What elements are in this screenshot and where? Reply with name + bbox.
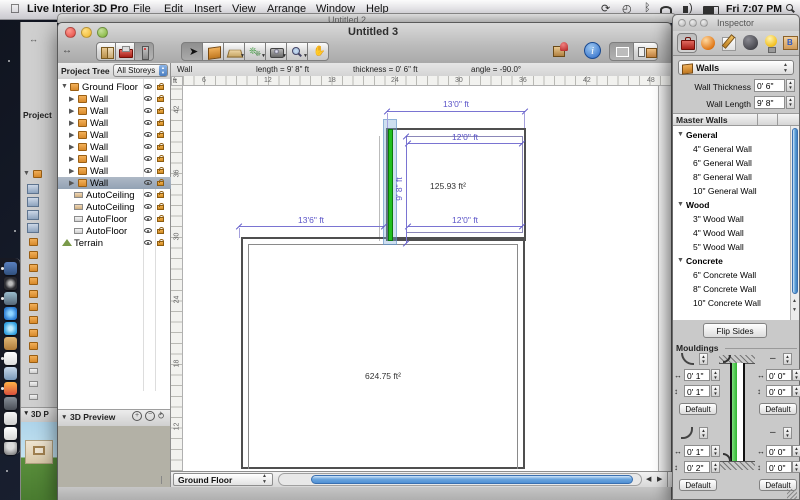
wall-length-value: 9' 8" xyxy=(757,98,773,108)
folder-icon xyxy=(78,179,87,187)
dimension-tick xyxy=(522,108,528,114)
crown-profile-icon[interactable] xyxy=(681,353,694,365)
lock-icon[interactable] xyxy=(157,241,164,246)
lock-icon[interactable] xyxy=(157,133,164,138)
group-label: Concrete xyxy=(686,256,723,266)
materials-sphere-icon[interactable] xyxy=(701,36,715,50)
folder-icon xyxy=(29,316,38,324)
lock-icon[interactable] xyxy=(157,85,164,90)
wall-thickness-stepper[interactable]: ▲▼ xyxy=(786,79,795,92)
dock-document-icon[interactable] xyxy=(4,427,17,440)
folder-icon xyxy=(29,342,38,350)
wall-item[interactable]: 3" Wood Wall xyxy=(673,213,791,225)
eye-icon[interactable] xyxy=(144,204,152,209)
wall-item-label: 4" Wood Wall xyxy=(693,228,744,238)
project-tree-header: Project Tree All Storeys ▲▼ xyxy=(58,63,170,80)
disclosure-icon[interactable]: ▶ xyxy=(69,95,74,103)
selected-wall[interactable] xyxy=(388,129,393,241)
table-icon xyxy=(27,184,39,194)
lock-icon[interactable] xyxy=(157,229,164,234)
toolbox-handle xyxy=(685,37,691,41)
tree-row-wall[interactable]: ▶ Wall xyxy=(58,153,171,165)
wall-item[interactable]: 8" Concrete Wall xyxy=(673,283,791,295)
wall-item-label: 3" Wood Wall xyxy=(693,214,744,224)
width-icon: ↔ xyxy=(674,447,682,456)
wall-item[interactable]: 6" Concrete Wall xyxy=(673,269,791,281)
preview-rotate-icon[interactable]: ⥁ xyxy=(158,411,164,422)
ruler-tick-label: 30 xyxy=(173,233,180,241)
disclosure-icon[interactable]: ▶ xyxy=(69,131,74,139)
dimension-line xyxy=(239,226,384,227)
eye-icon[interactable] xyxy=(144,240,152,245)
ruler-tick-label: 18 xyxy=(328,77,336,84)
tree-label: Terrain xyxy=(74,238,103,249)
preview-window-frame xyxy=(33,446,45,455)
no-profile-icon[interactable]: – xyxy=(770,353,776,364)
split-house-icon xyxy=(646,48,657,58)
folder-icon xyxy=(29,355,38,363)
inspector-toolbar: B xyxy=(673,31,799,56)
building-properties-icon[interactable]: B xyxy=(783,36,798,50)
room-tool-button[interactable]: ▼ xyxy=(223,42,245,61)
profile-stepper[interactable]: ▲▼ xyxy=(699,427,708,439)
dock-running-dot xyxy=(1,297,4,300)
wall-cross-section-green xyxy=(732,363,737,461)
wall-item-label: 6" General Wall xyxy=(693,158,752,168)
info-button[interactable]: i xyxy=(584,42,601,59)
wall-item-label: 8" Concrete Wall xyxy=(693,284,756,294)
horizontal-ruler: 6 12 18 24 30 36 42 48 xyxy=(183,76,671,86)
dock-running-dot xyxy=(1,387,4,390)
dock-app-icon[interactable] xyxy=(4,307,17,320)
wall-group-general[interactable]: ▼General xyxy=(673,129,791,141)
select-tool-button[interactable]: ➤ xyxy=(181,42,203,61)
vertical-ruler: 42 36 30 24 18 12 xyxy=(171,86,183,471)
default-button[interactable]: Default xyxy=(679,403,717,415)
group-label: General xyxy=(686,130,718,140)
tree-row-autofloor[interactable]: AutoFloor xyxy=(58,225,171,237)
light-bulb-icon[interactable] xyxy=(765,35,777,47)
master-walls-list[interactable]: ▼General 4" General Wall 6" General Wall… xyxy=(673,126,799,320)
tree-row-wall[interactable]: ▶ Wall xyxy=(58,165,171,177)
area-label-lower: 624.75 ft² xyxy=(351,371,415,381)
dim-label-inner-top: 12'0" ft xyxy=(435,132,495,142)
moulding-field[interactable]: 0' 1" xyxy=(684,369,710,381)
camera-tool-button[interactable]: ▼ xyxy=(265,42,287,61)
base-profile-icon[interactable] xyxy=(681,427,693,439)
lock-icon[interactable] xyxy=(157,145,164,150)
table-icon xyxy=(27,197,39,207)
field-stepper[interactable]: ▲▼ xyxy=(792,461,800,473)
profile-stepper[interactable]: ▲▼ xyxy=(699,353,708,365)
camera-object-icon[interactable] xyxy=(743,35,758,50)
tree-label: Wall xyxy=(90,178,108,189)
dock-app-icon[interactable] xyxy=(4,367,17,380)
desktop-star xyxy=(6,470,8,472)
dimension-line-vertical xyxy=(406,136,407,243)
tree-label: Wall xyxy=(90,130,108,141)
main-window: Untitled 3 ↔ ➤ ▼ ❊ ❊ ▼ xyxy=(57,22,672,500)
disclosure-icon[interactable]: ▶ xyxy=(69,119,74,127)
lock-icon[interactable] xyxy=(157,217,164,222)
disclosure-icon[interactable]: ▶ xyxy=(69,167,74,175)
profile-stepper[interactable]: ▲▼ xyxy=(783,427,792,439)
popup-arrows-icon: ▲▼ xyxy=(159,65,167,76)
moulding-field[interactable]: 0' 1" xyxy=(684,445,710,457)
view-2d-button[interactable] xyxy=(609,42,634,61)
wall-thickness-value: 0' 6" xyxy=(757,81,773,91)
wall-item-label: 10" General Wall xyxy=(693,186,757,196)
tree-row-wall-selected[interactable]: ▶ Wall xyxy=(58,177,171,189)
horizontal-scrollbar-track[interactable] xyxy=(278,473,642,486)
eye-icon[interactable] xyxy=(144,228,152,233)
horizontal-scrollbar-thumb[interactable] xyxy=(311,475,633,484)
folder-icon xyxy=(29,238,38,246)
dim-label-left: 13'6" ft xyxy=(281,215,341,225)
category-popup[interactable]: Walls ▲▼ xyxy=(678,60,794,75)
spotlight-handle xyxy=(791,9,795,13)
wall-thickness-field[interactable]: 0' 6" xyxy=(754,79,785,92)
eye-icon[interactable] xyxy=(144,180,152,185)
library-panel-button[interactable] xyxy=(96,42,116,61)
moulding-field[interactable]: 0' 0" xyxy=(766,369,792,381)
minimize-button[interactable] xyxy=(689,19,697,27)
ruler-tick-label: 12 xyxy=(173,423,180,431)
folder-icon xyxy=(78,119,87,127)
lock-icon[interactable] xyxy=(157,97,164,102)
trash-icon[interactable] xyxy=(4,442,17,455)
field-stepper[interactable]: ▲▼ xyxy=(711,445,720,457)
main-titlebar[interactable]: Untitled 3 ↔ ➤ ▼ ❊ ❊ ▼ xyxy=(58,23,671,64)
ruler-tick-label: 42 xyxy=(173,106,180,114)
wall-group-wood[interactable]: ▼Wood xyxy=(673,199,791,211)
tree-row-wall[interactable]: ▶ Wall xyxy=(58,93,171,105)
folder-icon xyxy=(78,95,87,103)
background-window-left-panel[interactable]: ↔ Project ▼ ▼ 3D P xyxy=(20,22,57,500)
moulding-value: 0' 0" xyxy=(769,387,785,397)
tree-row-wall[interactable]: ▶ Wall xyxy=(58,105,171,117)
wall-length-field[interactable]: 9' 8" xyxy=(754,96,785,109)
folder-icon xyxy=(78,143,87,151)
pan-tool-button[interactable]: ✋ xyxy=(307,42,329,61)
scroll-right-arrow[interactable]: ▶ xyxy=(657,475,662,483)
print-button[interactable] xyxy=(115,42,135,61)
info-glyph: i xyxy=(591,45,594,57)
section-divider xyxy=(725,348,797,349)
tree-label: AutoCeiling xyxy=(86,202,135,213)
tree-row-ground-floor[interactable]: ▼ Ground Floor xyxy=(58,81,171,93)
inspector-titlebar[interactable]: Inspector xyxy=(673,15,799,32)
dim-label-top: 13'0" ft xyxy=(426,99,486,109)
tree-row-wall[interactable]: ▶ Wall xyxy=(58,129,171,141)
group-label: Wood xyxy=(686,200,709,210)
dock-app-icon[interactable] xyxy=(4,292,17,305)
tree-label: Wall xyxy=(90,142,108,153)
wall-group-concrete[interactable]: ▼Concrete xyxy=(673,255,791,267)
lock-icon[interactable] xyxy=(157,121,164,126)
disclosure-icon[interactable]: ▼ xyxy=(61,83,68,90)
eye-icon[interactable] xyxy=(144,96,152,101)
default-button[interactable]: Default xyxy=(679,479,717,491)
folder-icon xyxy=(78,167,87,175)
preview-header: ▼ 3D Preview + − ⥁ xyxy=(58,409,170,427)
list-scrollbar-track[interactable]: ▲ ▼ xyxy=(790,126,799,320)
tree-label: AutoFloor xyxy=(86,226,127,237)
wall-item[interactable]: 8" General Wall xyxy=(673,171,791,183)
folder-icon xyxy=(29,303,38,311)
table-icon xyxy=(27,210,39,220)
figure-icon xyxy=(560,42,568,51)
close-button[interactable] xyxy=(65,27,76,38)
ruler-tick-label: 12 xyxy=(264,77,272,84)
objects-tool-button[interactable]: ❊ ❊ ▼ xyxy=(244,42,266,61)
field-stepper[interactable]: ▲▼ xyxy=(792,445,800,457)
dock-app-icon[interactable] xyxy=(4,277,17,290)
ceiling-icon xyxy=(29,381,38,387)
storey-filter-popup[interactable]: All Storeys ▲▼ xyxy=(113,64,168,77)
dock-document-icon[interactable] xyxy=(4,412,17,425)
disclosure-icon[interactable]: ▼ xyxy=(677,201,684,208)
zoom-button[interactable] xyxy=(700,19,708,27)
folder-icon xyxy=(29,277,38,285)
eye-icon[interactable] xyxy=(144,156,152,161)
lock-icon[interactable] xyxy=(157,193,164,198)
close-button[interactable] xyxy=(678,19,686,27)
lock-icon[interactable] xyxy=(157,109,164,114)
default-button[interactable]: Default xyxy=(759,403,797,415)
dock-app-icon[interactable] xyxy=(4,382,17,395)
hand-icon: ✋ xyxy=(313,46,325,57)
wall-item[interactable]: 4" Wood Wall xyxy=(673,227,791,239)
eye-icon[interactable] xyxy=(144,168,152,173)
disclosure-icon[interactable]: ▶ xyxy=(69,179,74,187)
background-3d-preview[interactable] xyxy=(21,422,58,500)
wall-item[interactable]: 10" General Wall xyxy=(673,185,791,197)
edit-tab[interactable] xyxy=(721,35,737,51)
tree-label: Wall xyxy=(90,166,108,177)
ruler-tick-label: 24 xyxy=(391,77,399,84)
minimize-button[interactable] xyxy=(81,27,92,38)
plan-view-icon xyxy=(616,47,629,57)
disclosure-icon[interactable]: ▶ xyxy=(69,143,74,151)
folder-icon xyxy=(33,170,42,178)
apple-menu-icon[interactable]:  xyxy=(10,1,20,16)
terrain-icon xyxy=(62,239,72,246)
tree-label: Wall xyxy=(90,118,108,129)
tree-row-autoceiling[interactable]: AutoCeiling xyxy=(58,201,171,213)
info-angle: angle = -90.0° xyxy=(471,65,521,74)
vertical-scrollbar[interactable] xyxy=(658,86,671,471)
moulding-value: 0' 0" xyxy=(769,371,785,381)
ruler-tick-label: 6 xyxy=(202,77,206,84)
camera-lens xyxy=(274,49,279,54)
moulding-field[interactable]: 0' 0" xyxy=(766,385,792,397)
splitter-grip[interactable] xyxy=(161,476,171,484)
wall-item[interactable]: 6" General Wall xyxy=(673,157,791,169)
moulding-field[interactable]: 0' 1" xyxy=(684,385,710,397)
eye-icon[interactable] xyxy=(144,84,152,89)
preview-zoom-in-icon[interactable]: + xyxy=(132,411,142,421)
pane-splitter-icon[interactable]: ↔ xyxy=(62,45,72,56)
ceiling-icon xyxy=(74,204,83,210)
project-tree-label: Project Tree xyxy=(61,66,110,76)
inspector-toggle-button[interactable] xyxy=(134,42,154,61)
tree-label: Ground Floor xyxy=(82,82,138,93)
dock-app-icon[interactable] xyxy=(4,337,17,350)
project-tree-list: ▼ Ground Floor ▶ Wall ▶ Wall ▶ Wall xyxy=(58,79,170,391)
view-split-button[interactable] xyxy=(633,42,658,61)
dock-app-icon[interactable] xyxy=(4,352,17,365)
extension-line xyxy=(239,228,240,238)
zoom-tool-button[interactable]: ▼ xyxy=(286,42,308,61)
disclosure-icon[interactable]: ▼ xyxy=(61,414,67,421)
background-project-label: Project xyxy=(23,110,58,120)
dimension-line xyxy=(387,111,525,112)
field-stepper[interactable]: ▲▼ xyxy=(711,385,720,397)
selection-info-bar: Wall length = 9' 8" ft thickness = 0' 6"… xyxy=(171,63,671,77)
storey-popup-value: Ground Floor xyxy=(178,475,232,485)
height-icon: ↕ xyxy=(674,463,678,472)
floor-icon xyxy=(74,228,83,234)
dock-app-icon[interactable] xyxy=(4,397,17,410)
ruler-tick-label: 30 xyxy=(455,77,463,84)
status-bar: Ground Floor ▲▼ ◀ ▶ 100% xyxy=(171,471,671,487)
profile-stepper[interactable]: ▲▼ xyxy=(783,353,792,365)
list-scrollbar-thumb[interactable] xyxy=(792,128,798,294)
export-button[interactable] xyxy=(552,41,570,59)
split-left-icon xyxy=(638,47,645,57)
eye-icon[interactable] xyxy=(144,192,152,197)
scroll-left-arrow[interactable]: ◀ xyxy=(646,475,651,483)
ceiling-icon xyxy=(74,192,83,198)
storey-popup[interactable]: Ground Floor ▲▼ xyxy=(173,473,273,486)
dimension-line xyxy=(408,226,522,227)
preview-zoom-out-icon[interactable]: − xyxy=(145,411,155,421)
wall-item[interactable]: 4" General Wall xyxy=(673,143,791,155)
moulding-field[interactable]: 0' 2" xyxy=(684,461,710,473)
floor-icon xyxy=(29,394,38,400)
toolbox-icon xyxy=(681,40,695,50)
no-profile-icon[interactable]: – xyxy=(770,427,776,438)
dock-app-icon[interactable] xyxy=(4,262,17,275)
dock-app-icon[interactable] xyxy=(4,322,17,335)
desktop-star xyxy=(14,230,16,232)
dim-label-height: 9' 8" ft xyxy=(394,164,404,214)
disclosure-icon[interactable]: ▶ xyxy=(69,155,74,163)
eye-icon[interactable] xyxy=(144,216,152,221)
lock-icon[interactable] xyxy=(157,181,164,186)
wall-item[interactable]: 10" Concrete Wall xyxy=(673,297,791,309)
folder-icon xyxy=(29,251,38,259)
eye-icon[interactable] xyxy=(144,120,152,125)
storey-filter-value: All Storeys xyxy=(117,66,155,75)
desktop-star xyxy=(8,60,10,62)
moulding-value: 0' 0" xyxy=(769,447,785,457)
master-walls-header-label: Master Walls xyxy=(676,115,728,125)
disclosure-icon[interactable]: ▼ xyxy=(677,257,684,264)
lock-icon[interactable] xyxy=(157,205,164,210)
disclosure-icon[interactable]: ▼ xyxy=(677,131,684,138)
eye-icon[interactable] xyxy=(144,144,152,149)
volume-waves-icon: ) xyxy=(689,2,693,14)
folder-icon xyxy=(70,83,79,91)
eye-icon[interactable] xyxy=(144,132,152,137)
ruler-tick-label: 42 xyxy=(583,77,591,84)
printer-paper xyxy=(122,46,130,52)
wall-item-label: 10" Concrete Wall xyxy=(693,298,761,308)
floor-icon xyxy=(74,216,83,222)
window-bottom-edge xyxy=(58,487,671,500)
wall-tool-icon xyxy=(208,46,221,60)
eye-icon[interactable] xyxy=(144,108,152,113)
master-walls-header[interactable]: Master Walls xyxy=(673,113,799,126)
moulding-value: 0' 1" xyxy=(687,371,703,381)
background-preview-header: ▼ 3D P xyxy=(21,407,58,423)
tree-row-terrain[interactable]: Terrain xyxy=(58,237,171,249)
field-stepper[interactable]: ▲▼ xyxy=(792,369,800,381)
zoom-button[interactable] xyxy=(97,27,108,38)
moulding-value: 0' 0" xyxy=(769,463,785,473)
wall-item-label: 5" Wood Wall xyxy=(693,242,744,252)
ruler-tick-label: 48 xyxy=(647,77,655,84)
tree-row-wall[interactable]: ▶ Wall xyxy=(58,141,171,153)
inspector-title: Inspector xyxy=(717,18,754,28)
tree-row-autofloor[interactable]: AutoFloor xyxy=(58,213,171,225)
tree-label: Wall xyxy=(90,154,108,165)
tree-label: AutoFloor xyxy=(86,214,127,225)
category-popup-value: Walls xyxy=(696,63,719,73)
height-icon: ↕ xyxy=(757,387,761,396)
tree-label: AutoCeiling xyxy=(86,190,135,201)
moulding-field[interactable]: 0' 0" xyxy=(766,445,792,457)
popup-arrows-icon: ▲▼ xyxy=(783,62,788,74)
disclosure-icon[interactable]: ▶ xyxy=(69,107,74,115)
wall-tool-button[interactable] xyxy=(202,42,224,61)
folder-icon xyxy=(78,155,87,163)
flip-sides-button[interactable]: Flip Sides xyxy=(703,323,767,338)
height-icon: ↕ xyxy=(757,463,761,472)
lock-icon[interactable] xyxy=(157,169,164,174)
desktop: { "menu_bar": { "apple": "", "app_name":… xyxy=(0,0,800,500)
field-stepper[interactable]: ▲▼ xyxy=(792,385,800,397)
wall-thickness-label: Wall Thickness xyxy=(673,82,751,92)
field-stepper[interactable]: ▲▼ xyxy=(711,369,720,381)
magnifier-handle xyxy=(298,53,302,57)
dock-running-dot xyxy=(1,357,4,360)
building-properties-letter: B xyxy=(787,38,793,47)
wall-item[interactable]: 5" Wood Wall xyxy=(673,241,791,253)
lower-room-inner-boundary xyxy=(248,244,518,469)
volume-icon[interactable] xyxy=(683,6,688,13)
resize-grip[interactable] xyxy=(787,489,797,499)
field-stepper[interactable]: ▲▼ xyxy=(711,461,720,473)
folder-icon xyxy=(78,107,87,115)
floor-hatch xyxy=(719,461,755,470)
moulding-value: 0' 1" xyxy=(687,447,703,457)
tree-row-autoceiling[interactable]: AutoCeiling xyxy=(58,189,171,201)
folder-icon xyxy=(29,329,38,337)
lock-icon[interactable] xyxy=(157,157,164,162)
wall-length-stepper[interactable]: ▲▼ xyxy=(786,96,795,109)
tree-row-wall[interactable]: ▶ Wall xyxy=(58,117,171,129)
plan-canvas[interactable]: 13'0" ft 12'0" ft 13'6" ft 12'0" ft 9' 8… xyxy=(183,86,658,471)
scroll-down-arrow[interactable]: ▼ xyxy=(792,307,797,313)
moulding-field[interactable]: 0' 0" xyxy=(766,461,792,473)
ruler-corner: ft xyxy=(171,76,183,86)
bulb-base xyxy=(768,47,776,53)
building-tab-selected[interactable] xyxy=(677,33,697,53)
scroll-up-arrow[interactable]: ▲ xyxy=(792,298,797,304)
